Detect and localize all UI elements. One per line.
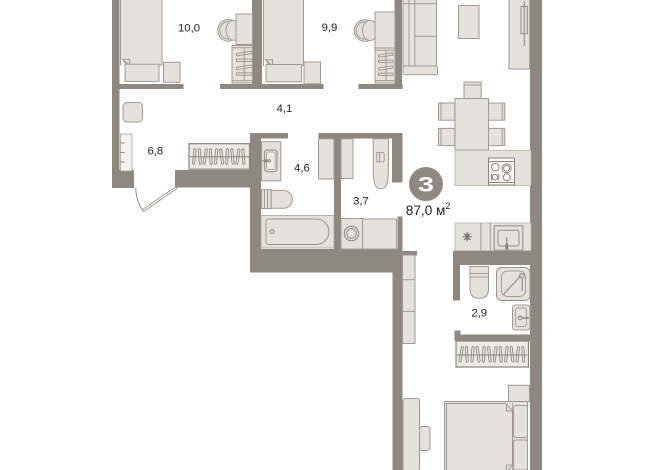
svg-text:3,7: 3,7: [353, 195, 369, 207]
svg-text:6,8: 6,8: [147, 145, 163, 157]
svg-text:10,0: 10,0: [178, 23, 200, 35]
svg-text:3: 3: [418, 174, 434, 197]
svg-text:9,9: 9,9: [322, 22, 338, 34]
svg-text:87,0 м2: 87,0 м2: [406, 201, 451, 218]
svg-text:4,6: 4,6: [294, 162, 310, 174]
svg-text:2,9: 2,9: [471, 308, 487, 320]
svg-text:4,1: 4,1: [277, 103, 293, 115]
